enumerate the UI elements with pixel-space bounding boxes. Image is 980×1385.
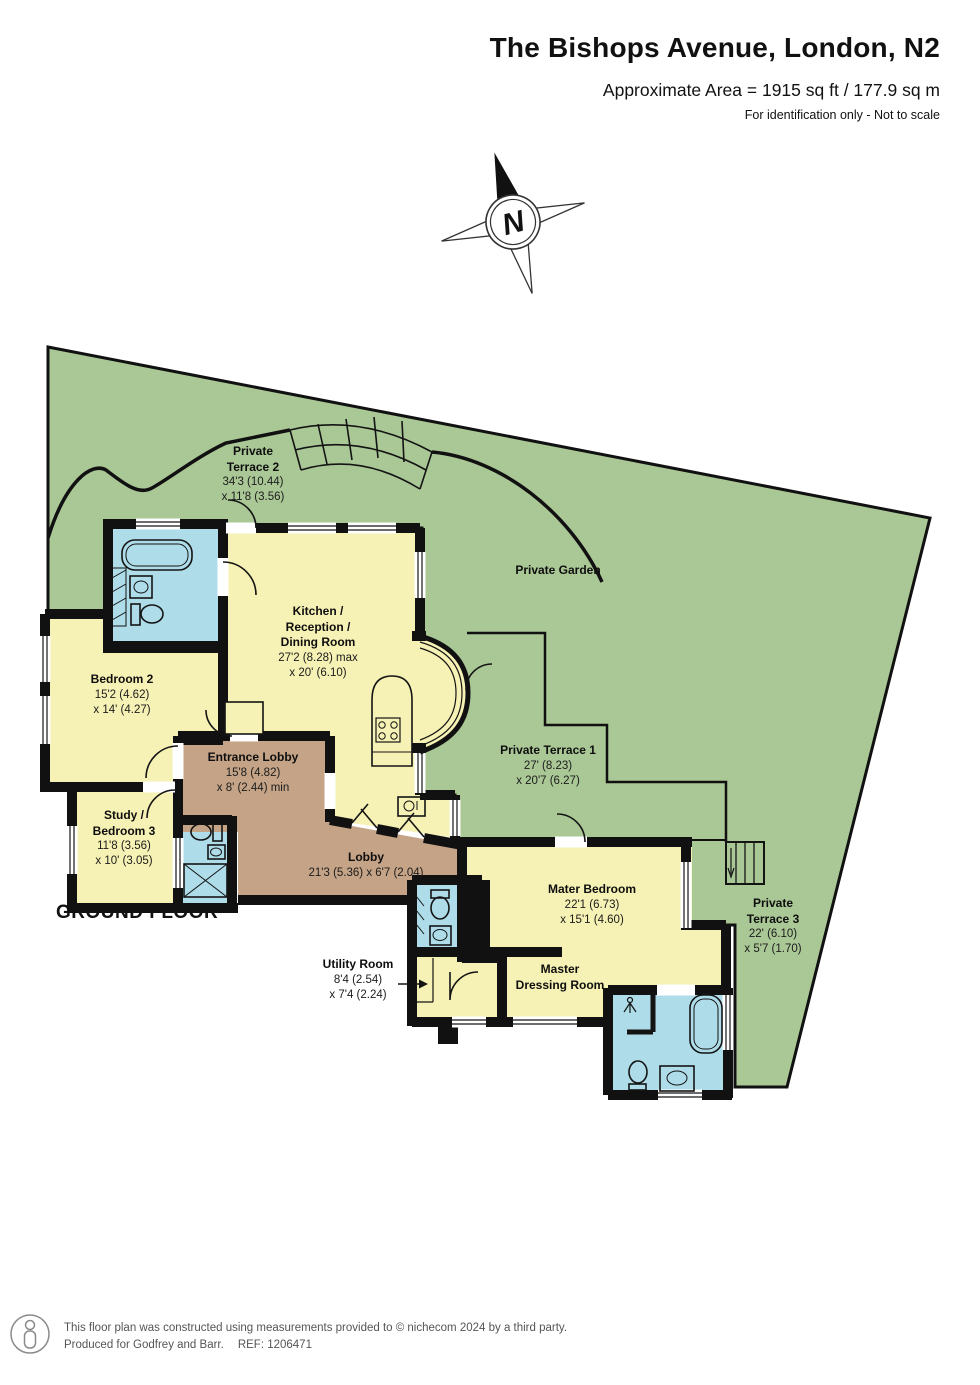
- identification-note: For identification only - Not to scale: [745, 108, 940, 122]
- label-private-terrace-3: Private Terrace 3 22' (6.10) x 5'7 (1.70…: [744, 896, 801, 957]
- label-utility-room: Utility Room 8'4 (2.54) x 7'4 (2.24): [323, 957, 394, 1002]
- footer-produced-for: Produced for Godfrey and Barr.: [64, 1339, 224, 1351]
- footer-disclaimer: This floor plan was constructed using me…: [64, 1320, 567, 1353]
- compass-north-icon: N: [423, 133, 604, 312]
- footer-line2: Produced for Godfrey and Barr.REF: 12064…: [64, 1337, 567, 1354]
- page-title: The Bishops Avenue, London, N2: [490, 32, 940, 64]
- label-entrance-lobby: Entrance Lobby 15'8 (4.82) x 8' (2.44) m…: [208, 750, 299, 795]
- label-bedroom-2: Bedroom 2 15'2 (4.62) x 14' (4.27): [91, 672, 154, 717]
- entrance-porch: [225, 702, 263, 734]
- footer-ref: REF: 1206471: [238, 1339, 312, 1351]
- approximate-area: Approximate Area = 1915 sq ft / 177.9 sq…: [603, 80, 940, 101]
- label-lobby: Lobby 21'3 (5.36) x 6'7 (2.04): [309, 850, 424, 881]
- label-private-garden: Private Garden: [515, 563, 600, 579]
- label-master-bedroom: Mater Bedroom 22'1 (6.73) x 15'1 (4.60): [548, 882, 636, 927]
- person-icon: [11, 1315, 49, 1353]
- floorplan-page: { "header": { "title": "The Bishops Aven…: [0, 0, 980, 1385]
- label-private-terrace-2: Private Terrace 2 34'3 (10.44) x 11'8 (3…: [222, 444, 285, 505]
- footer-line1: This floor plan was constructed using me…: [64, 1320, 567, 1337]
- label-master-dressing-room: Master Dressing Room: [516, 962, 605, 993]
- label-private-terrace-1: Private Terrace 1 27' (8.23) x 20'7 (6.2…: [500, 743, 596, 788]
- label-study-bedroom-3: Study / Bedroom 3 11'8 (3.56) x 10' (3.0…: [93, 808, 156, 869]
- ground-floor-label: GROUND FLOOR: [56, 902, 218, 924]
- label-kitchen: Kitchen / Reception / Dining Room 27'2 (…: [278, 604, 358, 681]
